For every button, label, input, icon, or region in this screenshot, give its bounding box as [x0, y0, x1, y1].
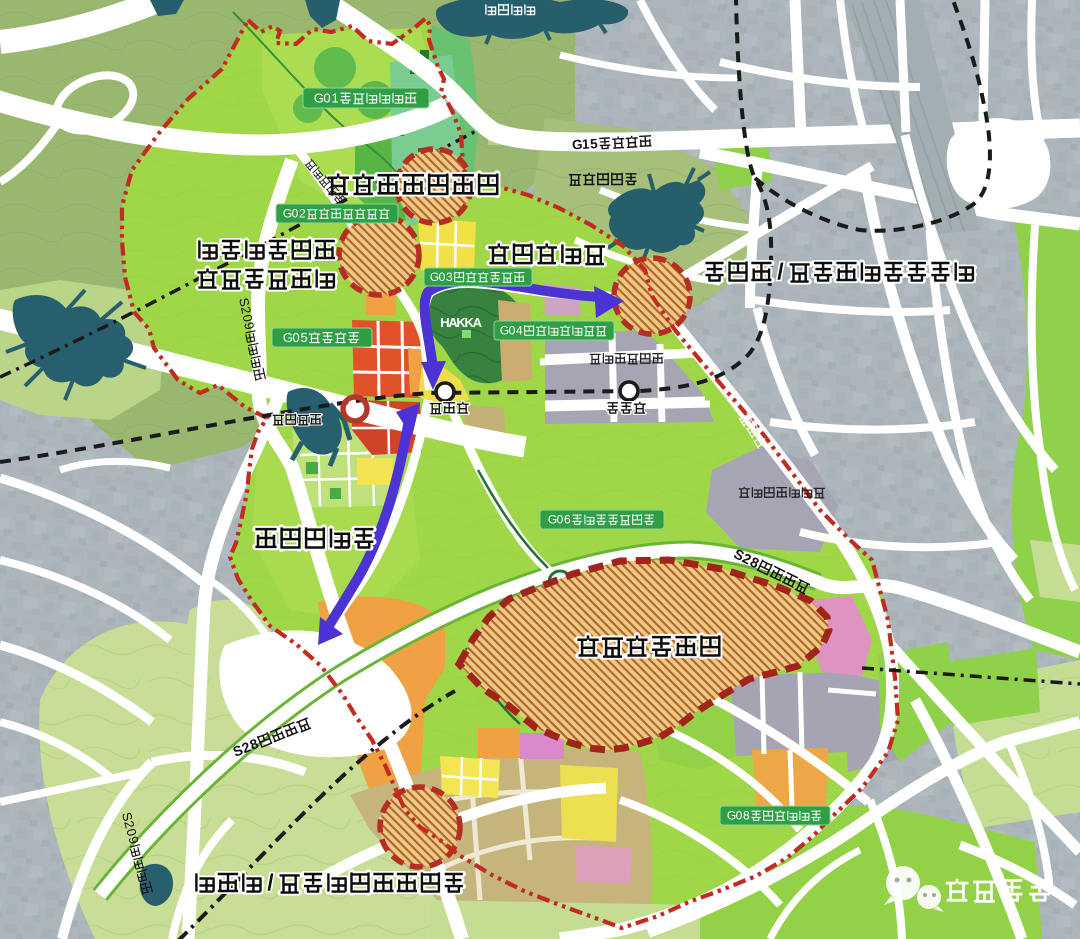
svg-text:A: A: [473, 315, 483, 330]
svg-text:8: 8: [743, 809, 750, 823]
svg-text:2: 2: [299, 207, 306, 221]
svg-text:0: 0: [509, 324, 516, 338]
svg-text:3: 3: [446, 270, 453, 284]
svg-text:0: 0: [323, 90, 330, 105]
svg-text:0: 0: [439, 270, 446, 284]
svg-text:5: 5: [590, 136, 599, 151]
svg-text:0: 0: [292, 207, 299, 221]
svg-text:4: 4: [516, 324, 523, 338]
svg-text:6: 6: [564, 513, 571, 527]
svg-text:0: 0: [736, 809, 743, 823]
svg-text:5: 5: [300, 330, 307, 345]
svg-text:/: /: [777, 258, 784, 284]
svg-text:/: /: [267, 869, 274, 895]
svg-text:1: 1: [331, 90, 338, 105]
svg-text:0: 0: [292, 330, 299, 345]
svg-text:0: 0: [557, 513, 564, 527]
